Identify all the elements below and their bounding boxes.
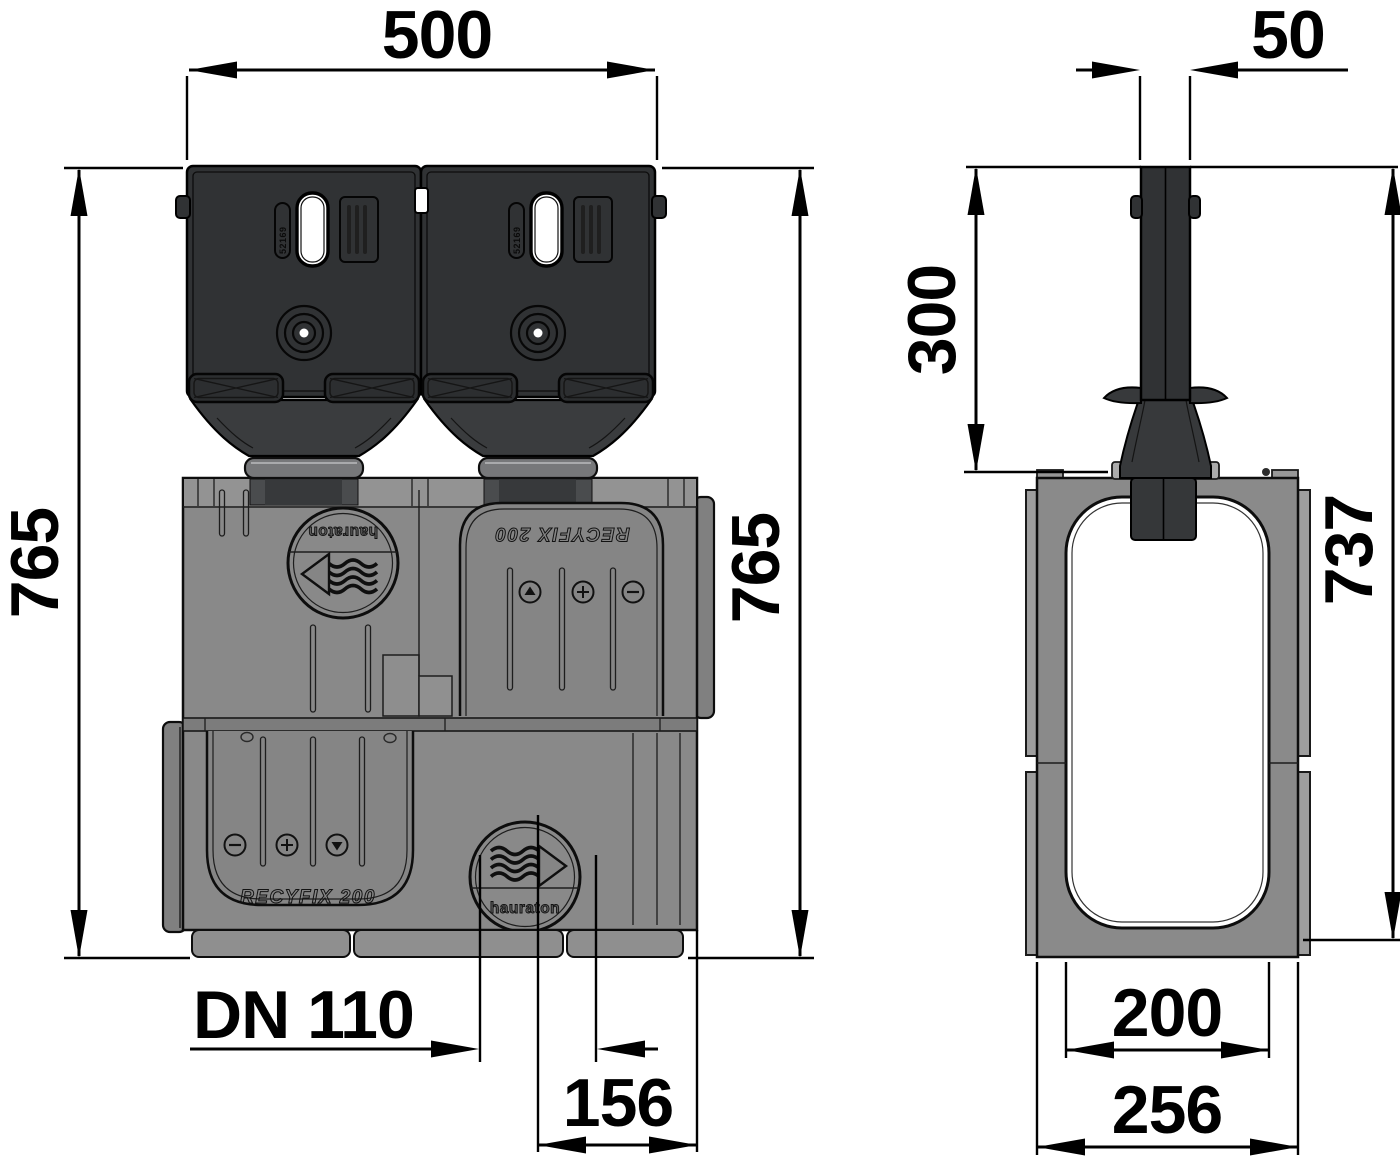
side-clip-right (652, 196, 666, 218)
side-view: 50 300 737 200 (894, 0, 1400, 1156)
recyfix-200-dimension-drawing: hauraton 52169 (0, 0, 1400, 1158)
funnel-neck-right (499, 478, 576, 505)
dim-765-left-label: 765 (0, 508, 73, 618)
step-block-a (383, 655, 419, 716)
dim-500-label: 500 (382, 0, 492, 73)
funnel-neck-left (265, 478, 342, 505)
dim-outlet-offset-156: 156 (538, 930, 697, 1154)
slot-bump-right (1189, 196, 1200, 218)
dim-clear-width-200: 200 (1066, 962, 1269, 1059)
step-block-b (419, 676, 452, 716)
front-view: RECYFIX 200 (0, 0, 814, 1154)
wing-left (1104, 387, 1141, 403)
dim-156-label: 156 (563, 1065, 673, 1141)
product-name-upper: RECYFIX 200 (494, 523, 630, 544)
dim-slot-height-300: 300 (894, 167, 1108, 472)
dim-256-label: 256 (1112, 1072, 1222, 1148)
slot-bump-left (1131, 196, 1142, 218)
front-channel-body: RECYFIX 200 (163, 478, 714, 957)
dim-channel-height-737: 737 (1303, 167, 1400, 940)
wing-right (1190, 387, 1227, 403)
side-funnel (1120, 396, 1211, 478)
channel-clear-opening (1066, 497, 1269, 928)
dim-200-label: 200 (1112, 975, 1222, 1051)
dim-height-left-765: 765 (0, 168, 190, 958)
front-grate-unit (176, 166, 666, 478)
dim-300-label: 300 (894, 265, 970, 375)
channel-joint-band (183, 718, 697, 731)
side-clip-left (176, 196, 190, 218)
dim-50-label: 50 (1251, 0, 1325, 73)
side-slot-attachment (1104, 167, 1227, 478)
product-name-lower: RECYFIX 200 (240, 887, 376, 908)
dim-overall-width-500: 500 (187, 0, 657, 160)
seam-notch (415, 188, 428, 213)
side-channel-section (1037, 462, 1298, 957)
dim-dn110-label: DN 110 (193, 977, 414, 1053)
dim-slot-width-50: 50 (1076, 0, 1348, 160)
dim-765-right-label: 765 (718, 513, 794, 623)
channel-foot-band (192, 930, 683, 957)
technical-drawing-page: hauraton 52169 (0, 0, 1400, 1158)
dim-737-label: 737 (1311, 495, 1387, 605)
